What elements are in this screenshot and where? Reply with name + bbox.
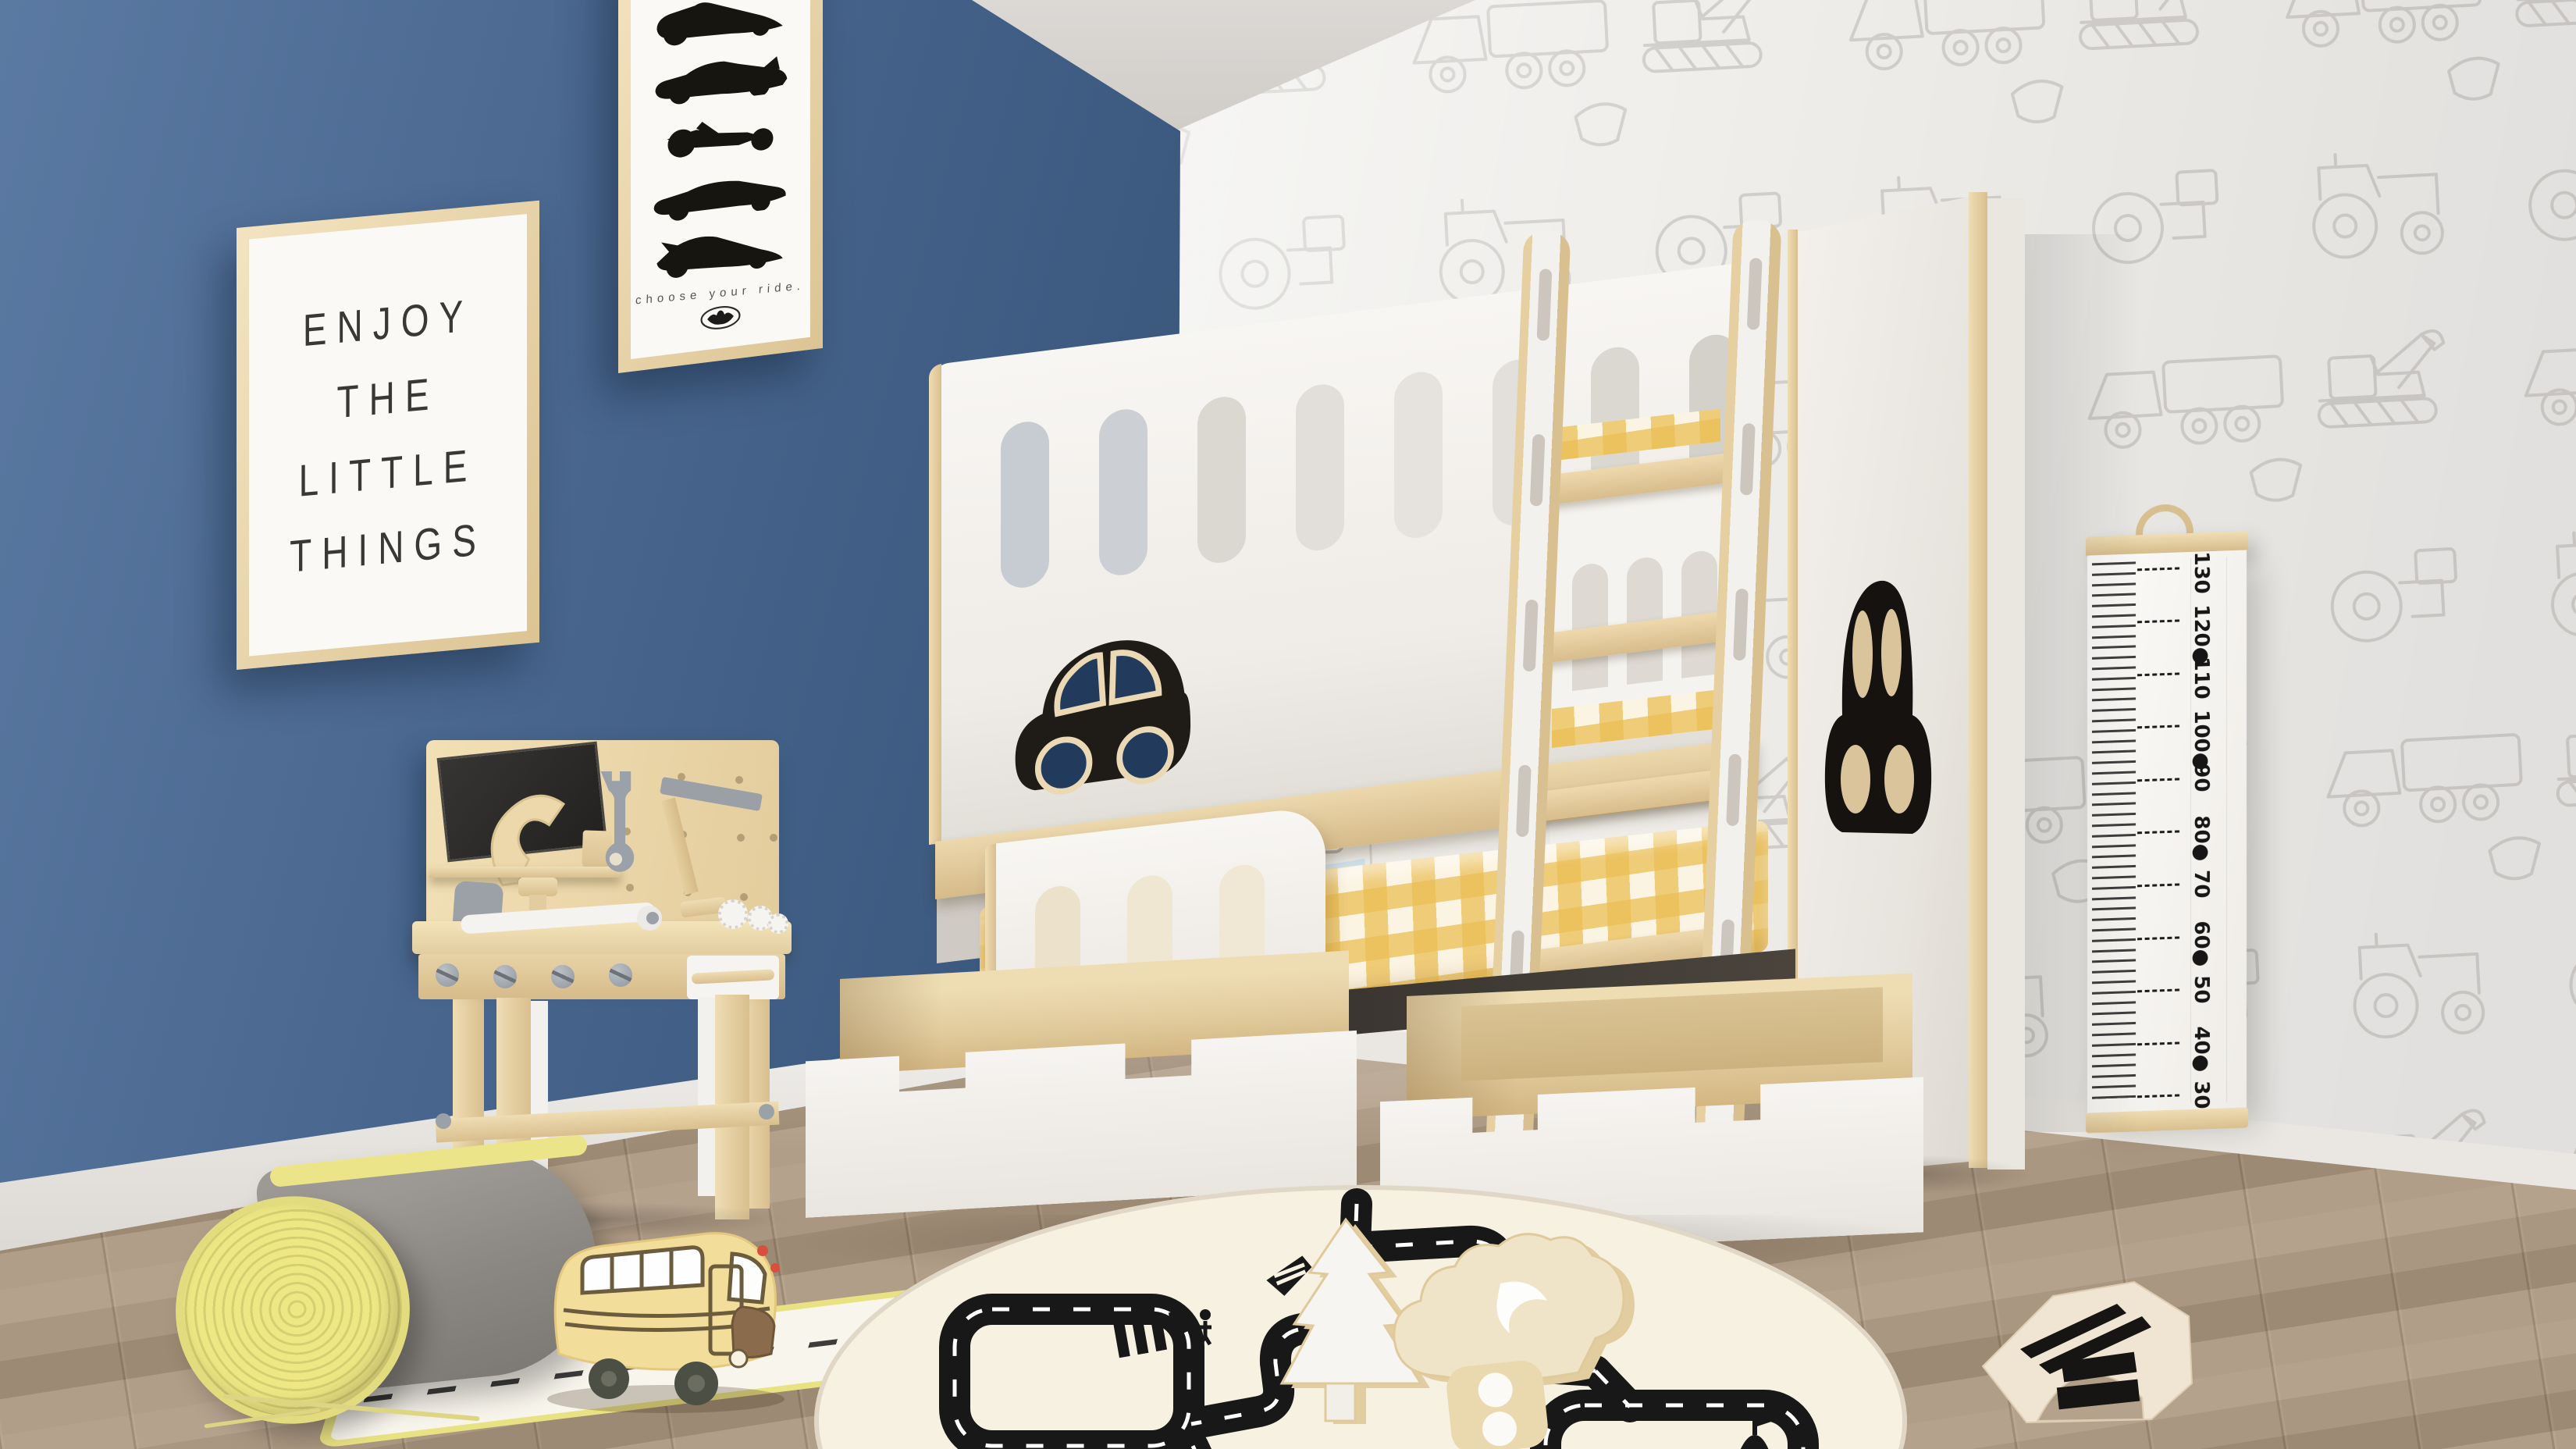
gray-bolt-on-top bbox=[646, 912, 659, 924]
growth-dash bbox=[2137, 831, 2179, 835]
peg-hole bbox=[740, 893, 748, 901]
car-silhouette-icon bbox=[648, 0, 793, 51]
quote-poster: ENJOY THE LITTLE THINGS bbox=[249, 214, 527, 656]
school-bus-toy bbox=[537, 1193, 795, 1419]
car-silhouette-icon bbox=[648, 159, 793, 224]
ladder-slot bbox=[1726, 754, 1742, 827]
growth-label: 60● bbox=[2190, 920, 2213, 952]
rail-cutout bbox=[1099, 407, 1147, 579]
wooden-arch-toy bbox=[1961, 1266, 2203, 1438]
ladder-slot bbox=[1740, 423, 1756, 496]
quote-poster-frame: ENJOY THE LITTLE THINGS bbox=[237, 201, 539, 670]
hanging-mallet-head bbox=[518, 878, 557, 896]
car-poster-frame: choose your ride. bbox=[618, 0, 823, 373]
rail-peg bbox=[436, 1113, 451, 1129]
car-silhouette-icon bbox=[648, 101, 793, 166]
workbench-drawer bbox=[687, 956, 779, 999]
growth-mark: 100● bbox=[2137, 710, 2245, 742]
kids-bedroom-scene: ENJOY THE LITTLE THINGS choose your ride… bbox=[0, 0, 2576, 1449]
growth-mark: 80● bbox=[2137, 815, 2245, 847]
drawer-interior-bottom bbox=[1461, 987, 1883, 1081]
growth-mark: 50 bbox=[2137, 974, 2245, 1006]
growth-mark: 60● bbox=[2137, 921, 2245, 953]
growth-mark: 40● bbox=[2137, 1027, 2245, 1059]
bolt-head bbox=[551, 965, 575, 988]
car-poster-caption: choose your ride. bbox=[635, 279, 806, 307]
growth-dash bbox=[2137, 1095, 2179, 1098]
growth-mark: 120● bbox=[2137, 604, 2245, 636]
ladder-slot bbox=[1537, 269, 1553, 341]
growth-dash bbox=[2137, 725, 2179, 729]
growth-mark: 70 bbox=[2137, 868, 2245, 900]
growth-mark: 130 bbox=[2137, 552, 2245, 584]
ladder-slot bbox=[1733, 589, 1749, 661]
ladder-slot bbox=[1516, 765, 1532, 838]
peg-hole bbox=[735, 776, 743, 784]
growth-label: 110 bbox=[2190, 657, 2213, 689]
growth-dash bbox=[2137, 1041, 2179, 1045]
toy-wrench-icon bbox=[590, 768, 651, 887]
growth-label: 30 bbox=[2190, 1079, 2213, 1111]
growth-label: 50 bbox=[2190, 974, 2213, 1006]
peg-hole bbox=[737, 834, 745, 842]
wardrobe-car-decal bbox=[1819, 567, 1936, 848]
growth-dash bbox=[2137, 672, 2179, 676]
peg-hole bbox=[770, 834, 777, 842]
wardrobe-wall-shadow bbox=[2025, 234, 2142, 1132]
rail-peg bbox=[759, 1104, 774, 1120]
growth-label: 80● bbox=[2190, 815, 2213, 847]
workbench-leg-white bbox=[698, 998, 715, 1196]
growth-chart-scale: 130 120● 110 100● 90 80● 70 60● 50 40● 3… bbox=[2137, 552, 2245, 1112]
wardrobe-front-trim bbox=[1969, 192, 1987, 1168]
ladder-slot bbox=[1747, 258, 1763, 330]
growth-mark: 30 bbox=[2137, 1079, 2245, 1111]
drawer-handle bbox=[692, 969, 775, 984]
growth-dash bbox=[2137, 989, 2179, 993]
car-silhouette-icon bbox=[648, 44, 793, 109]
growth-label: 40● bbox=[2190, 1026, 2213, 1058]
growth-label: 90 bbox=[2190, 762, 2213, 794]
toy-gear bbox=[768, 913, 788, 934]
rail-cutout bbox=[1197, 394, 1246, 566]
toy-gear bbox=[718, 899, 748, 929]
growth-mark: 110 bbox=[2137, 657, 2245, 689]
growth-dash bbox=[2137, 620, 2179, 624]
car-decal-bed bbox=[1011, 619, 1192, 804]
ladder-slot bbox=[1530, 434, 1546, 507]
growth-dash bbox=[2137, 778, 2179, 781]
car-silhouette-icon bbox=[648, 217, 793, 282]
bolt-head bbox=[493, 965, 517, 988]
wooden-traffic-light-toy bbox=[1429, 1353, 1571, 1449]
growth-label: 130 bbox=[2190, 551, 2213, 583]
bolt-head bbox=[609, 963, 632, 987]
ladder-slot bbox=[1523, 600, 1539, 672]
growth-dash bbox=[2137, 936, 2179, 940]
wardrobe-front-face bbox=[1987, 198, 2025, 1170]
bolt-head bbox=[436, 963, 459, 987]
quote-line: THINGS bbox=[290, 492, 486, 603]
rolled-play-mat bbox=[176, 1130, 597, 1435]
car-poster: choose your ride. bbox=[631, 0, 810, 359]
bed-wood-edge bbox=[929, 364, 941, 845]
growth-mark: 90 bbox=[2137, 763, 2245, 795]
rail-cutout bbox=[1001, 419, 1049, 591]
growth-dash bbox=[2137, 567, 2179, 571]
growth-label: 100● bbox=[2190, 710, 2213, 742]
growth-label: 120● bbox=[2190, 604, 2213, 636]
growth-dash bbox=[2137, 884, 2179, 888]
rail-cutout bbox=[1394, 369, 1443, 541]
bat-logo-icon bbox=[699, 302, 742, 334]
rail-cutout bbox=[1296, 382, 1344, 554]
growth-label: 70 bbox=[2190, 868, 2213, 900]
